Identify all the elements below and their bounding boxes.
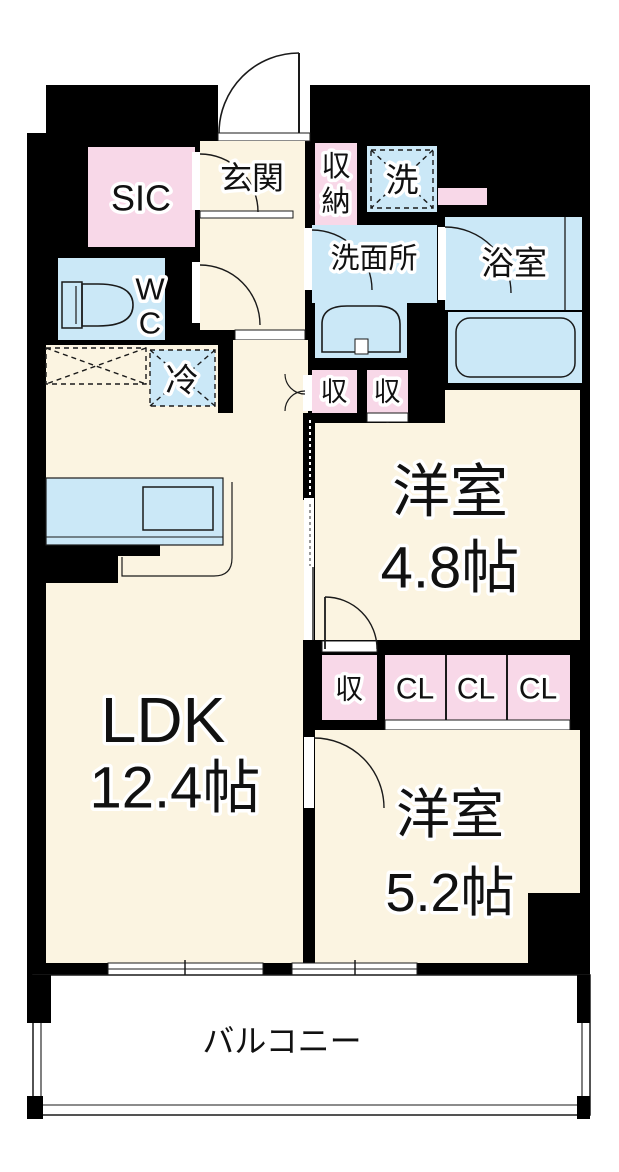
bathtub-area xyxy=(448,312,582,383)
kitchen-wall-step xyxy=(118,545,160,556)
label-ldk: LDK xyxy=(101,684,226,756)
bathroom-door-opening xyxy=(438,227,446,300)
kitchen-counter xyxy=(46,478,223,545)
label-hall-storage-left: 収 xyxy=(321,377,348,407)
label-washroom: 洗面所 xyxy=(330,242,417,275)
label-hall-storage-right: 収 xyxy=(374,377,401,407)
entrance-gap xyxy=(218,85,310,133)
hall-ldk-sill xyxy=(235,330,305,340)
balcony-wall-stub-left xyxy=(27,975,51,1023)
washroom-door-opening xyxy=(304,228,312,290)
hall-storage-left-opening xyxy=(303,375,312,411)
hallway xyxy=(200,211,305,330)
wall-notch xyxy=(27,85,46,133)
label-entrance: 玄関 xyxy=(220,160,284,196)
label-balcony: バルコニー xyxy=(202,1023,361,1059)
label-shoes-storage-1: 収 xyxy=(321,151,350,183)
label-fridge: 冷 xyxy=(166,362,199,399)
balcony-corner-right xyxy=(577,1096,590,1119)
label-western-1: 洋室 xyxy=(392,460,508,525)
label-wc-w: W xyxy=(135,272,165,307)
closet-sill xyxy=(385,720,570,730)
western-2-door-opening xyxy=(304,737,314,808)
floor-plan: SIC 玄関 収 納 洗 洗面所 浴室 W C 冷 収 収 洋室 4.8帖 LD… xyxy=(0,0,619,1172)
label-closet-1: CL xyxy=(396,673,434,706)
balcony-wall-stub-right xyxy=(577,975,590,1023)
pink-duct-strip xyxy=(438,188,487,205)
hall-storage-right-sill xyxy=(367,413,408,422)
balcony-corner-left xyxy=(27,1096,43,1119)
label-western-2-size: 5.2帖 xyxy=(385,863,514,923)
sic-door-opening xyxy=(192,152,200,210)
room-ldk-strip xyxy=(218,413,233,478)
kitchen-wall-block xyxy=(27,545,118,583)
entrance-step xyxy=(200,211,293,218)
sink-tap-icon xyxy=(355,339,368,354)
label-wc-c: C xyxy=(139,306,161,341)
entrance-sill xyxy=(218,133,310,141)
label-ldk-size: 12.4帖 xyxy=(90,756,261,821)
label-sic: SIC xyxy=(111,178,171,219)
label-closet-2: CL xyxy=(457,673,495,706)
label-shoes-storage-2: 納 xyxy=(321,185,350,218)
room-ldk-vestibule xyxy=(233,340,308,480)
label-closet-3: CL xyxy=(519,673,557,706)
wc-door-opening xyxy=(192,262,200,323)
room-storage-sill xyxy=(322,641,377,652)
label-western-2: 洋室 xyxy=(396,785,504,845)
label-washer: 洗 xyxy=(386,162,419,199)
label-room-storage: 収 xyxy=(335,674,363,705)
label-western-1-size: 4.8帖 xyxy=(381,536,520,601)
floor-plan-canvas: SIC 玄関 収 納 洗 洗面所 浴室 W C 冷 収 収 洋室 4.8帖 LD… xyxy=(0,0,619,1172)
label-bathroom: 浴室 xyxy=(481,245,547,282)
